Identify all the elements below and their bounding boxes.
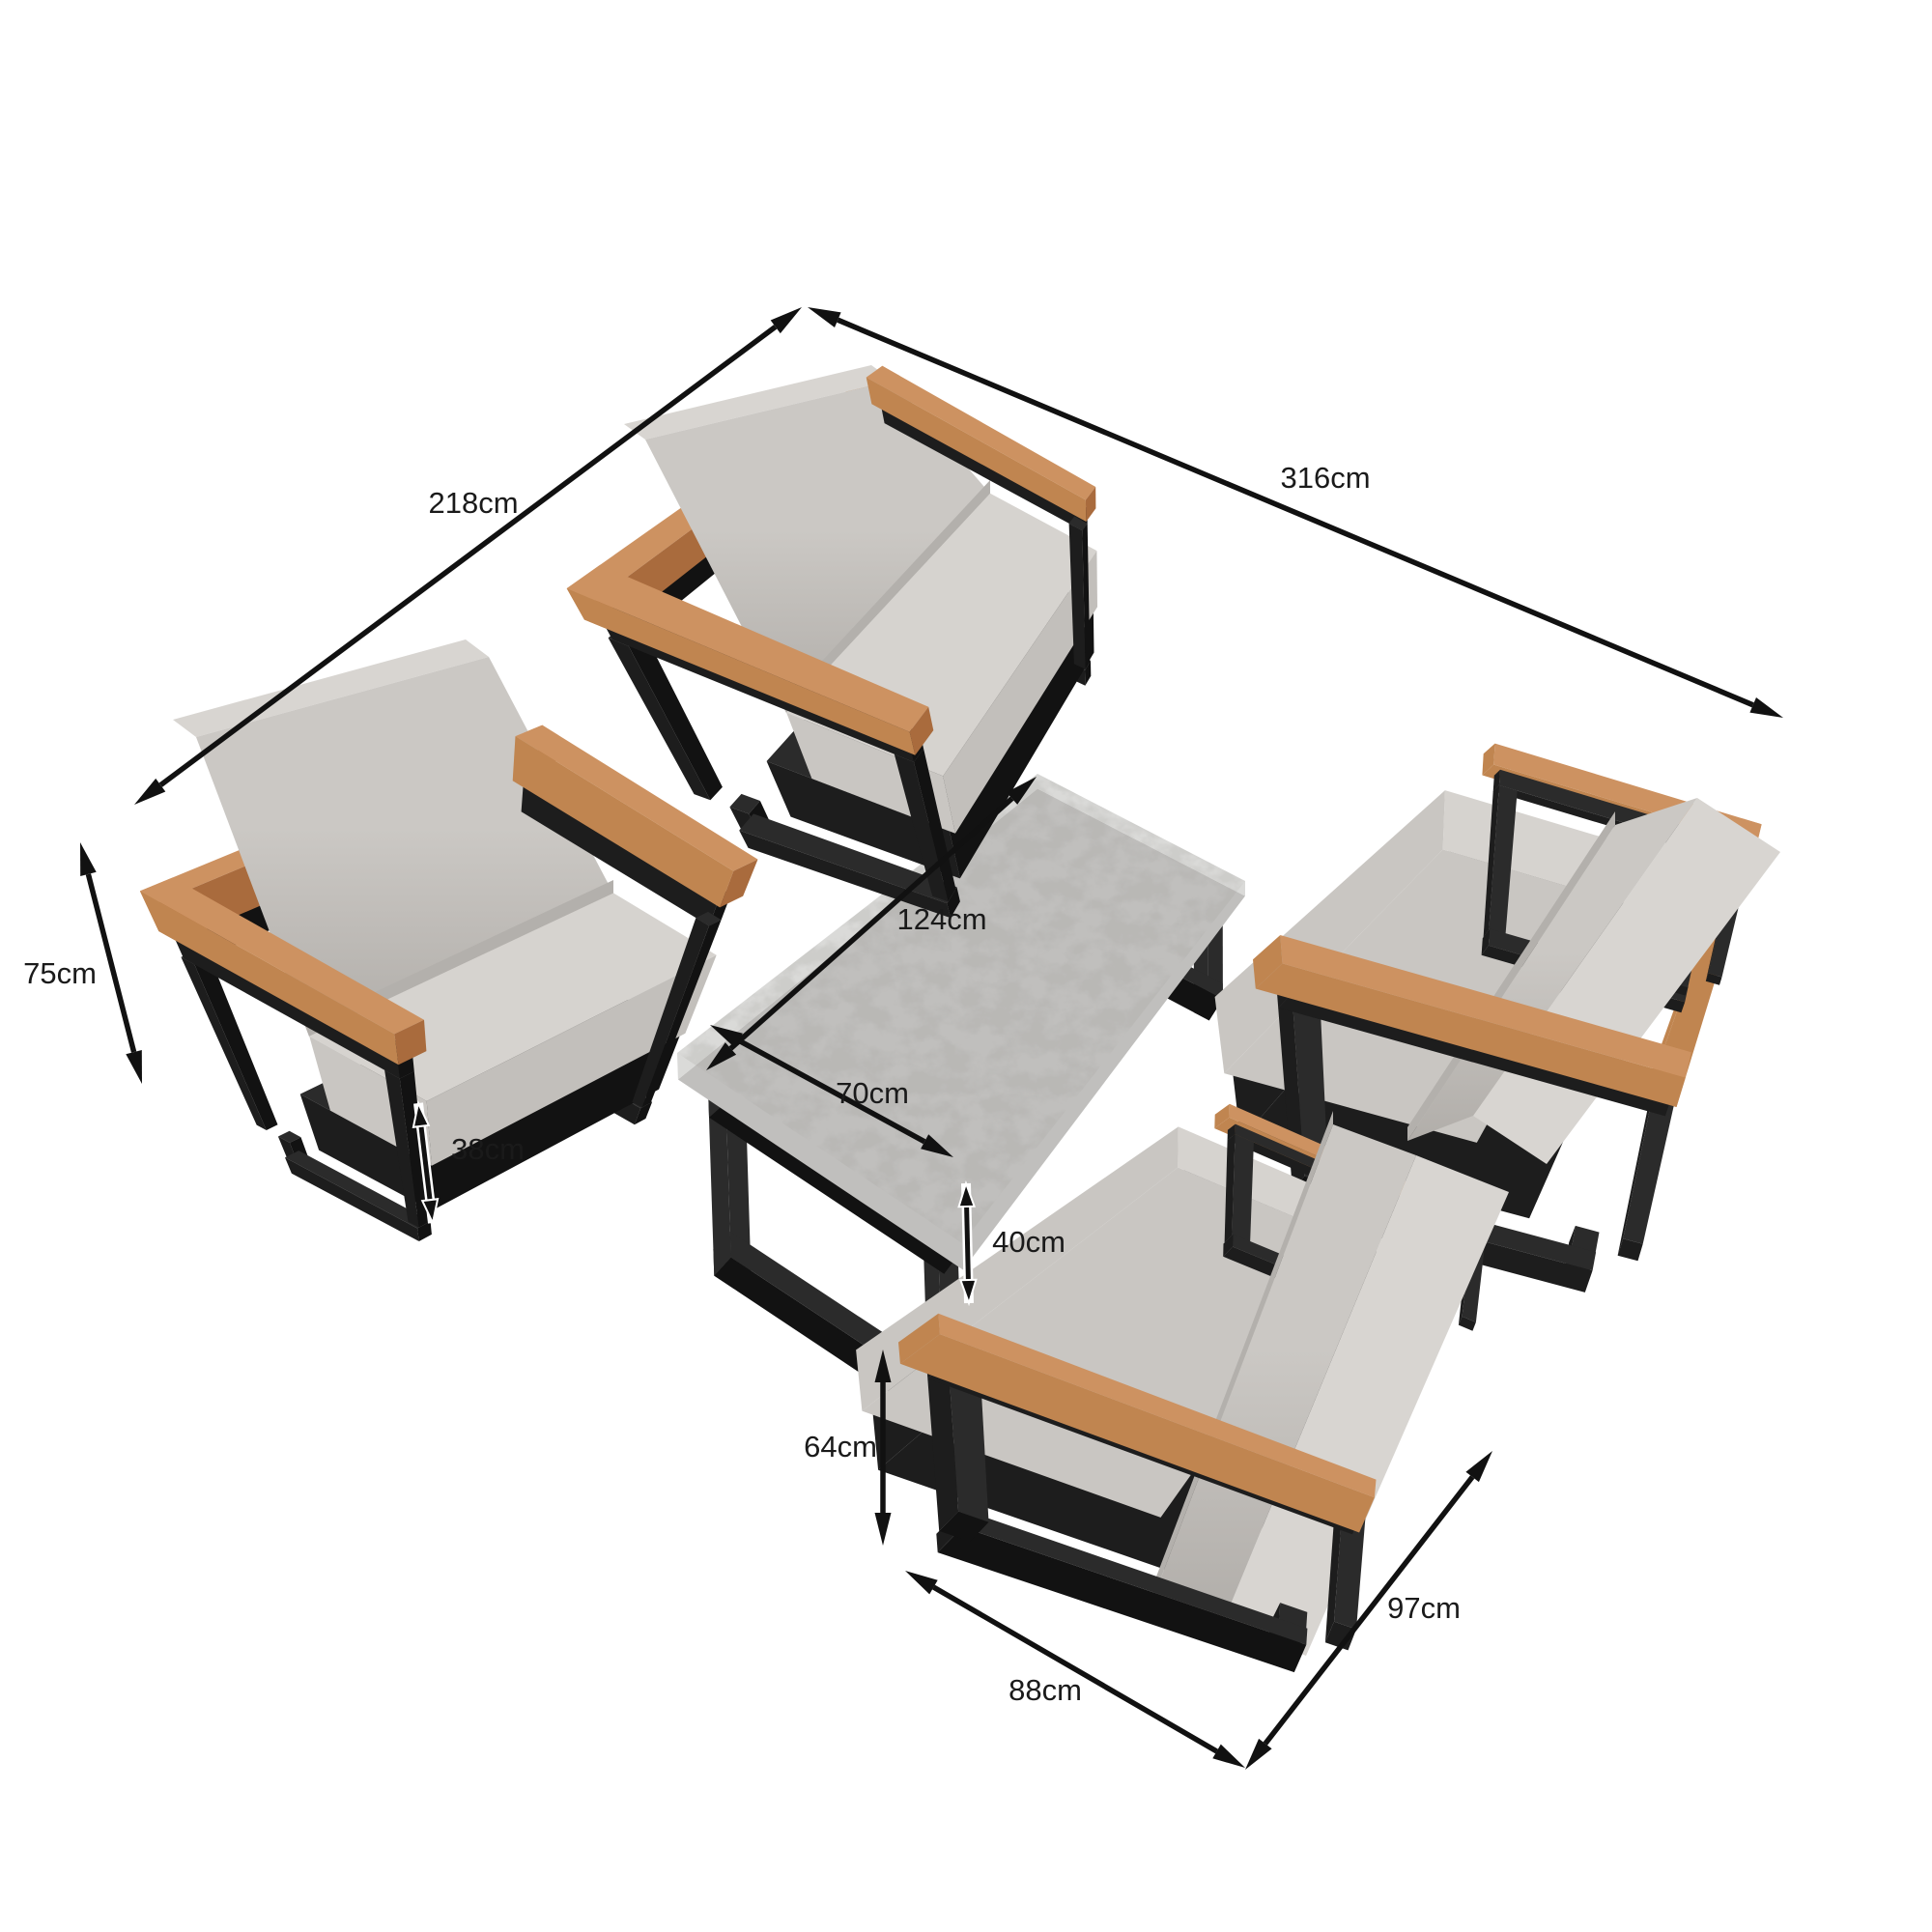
svg-text:64cm: 64cm [804, 1430, 877, 1463]
svg-text:316cm: 316cm [1280, 461, 1370, 495]
svg-text:218cm: 218cm [428, 486, 518, 520]
svg-text:88cm: 88cm [1009, 1673, 1082, 1707]
svg-text:38cm: 38cm [451, 1132, 525, 1166]
svg-text:97cm: 97cm [1387, 1591, 1461, 1625]
svg-text:70cm: 70cm [836, 1076, 909, 1110]
svg-text:40cm: 40cm [992, 1225, 1065, 1259]
svg-text:75cm: 75cm [23, 956, 97, 990]
svg-text:124cm: 124cm [896, 902, 986, 936]
